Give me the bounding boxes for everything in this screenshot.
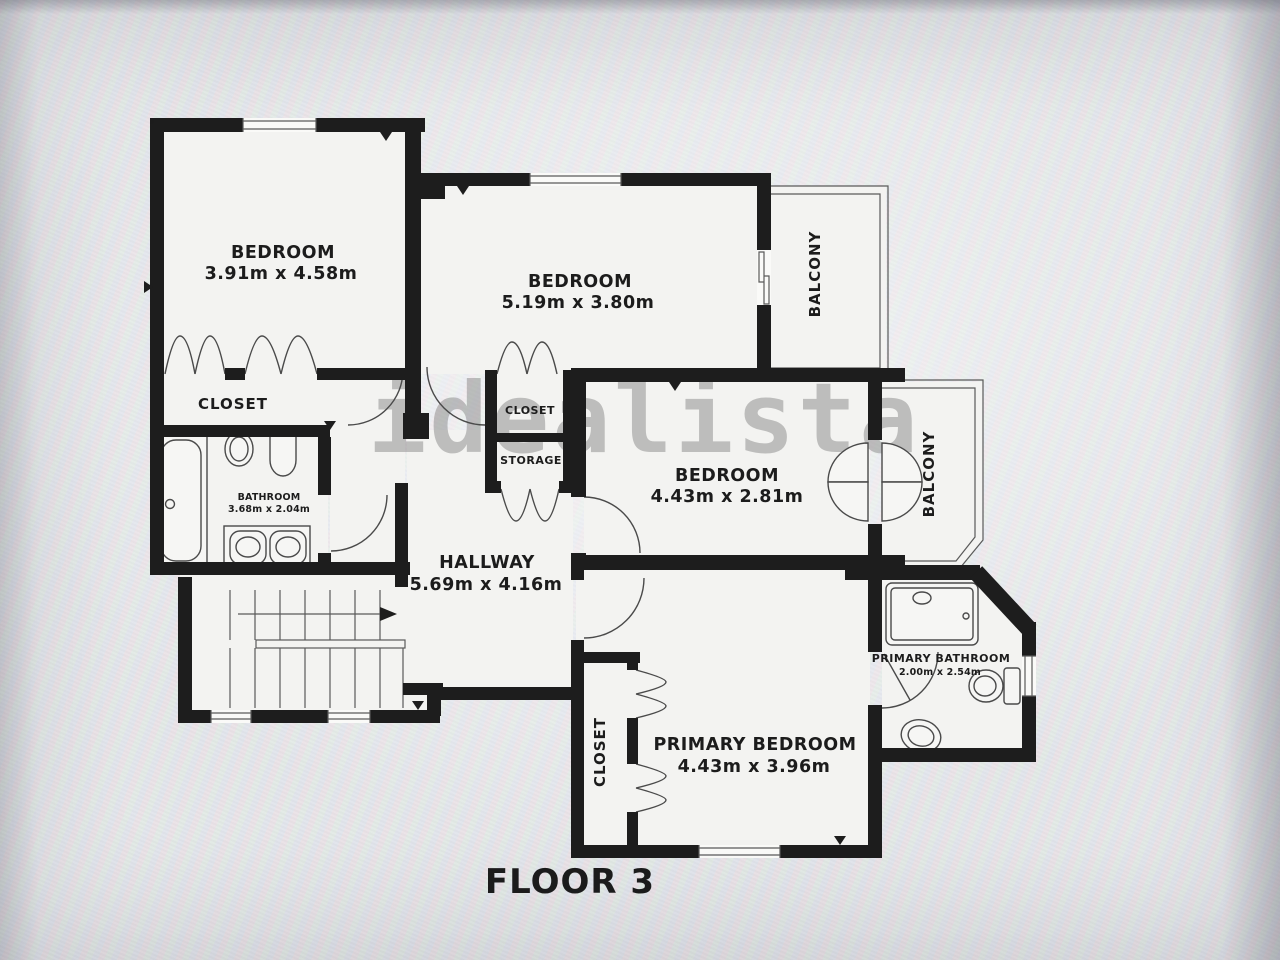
window-icon [328, 710, 370, 723]
bidet-icon [270, 436, 296, 476]
bathroom-dims: 3.68m x 2.04m [228, 504, 310, 515]
bedroom1-label: BEDROOM [231, 243, 335, 263]
storage-label: STORAGE [500, 454, 562, 467]
window-icon [236, 118, 323, 132]
primary-bedroom-dims: 4.43m x 3.96m [678, 757, 831, 777]
floor-plan-svg: idealista [0, 0, 1280, 960]
closet-bedroom1-label: CLOSET [198, 395, 268, 413]
balcony-top-label: BALCONY [806, 230, 824, 317]
balcony-right-label: BALCONY [920, 430, 938, 517]
window-icon [523, 173, 628, 186]
bedroom3-dims: 4.43m x 2.81m [651, 487, 804, 507]
double-sink-icon [224, 526, 310, 568]
bedroom2-dims: 5.19m x 3.80m [502, 293, 655, 313]
bedroom2-label: BEDROOM [528, 272, 632, 292]
shower-icon [886, 583, 978, 645]
floor-title: FLOOR 3 [485, 862, 655, 902]
window-icon [1022, 656, 1036, 696]
window-icon [692, 845, 787, 858]
toilet-icon [225, 432, 253, 466]
bedroom1-dims: 3.91m x 4.58m [205, 264, 358, 284]
window-icon [211, 710, 251, 723]
primary-bathroom-label: PRIMARY BATHROOM [872, 652, 1011, 665]
primary-bathroom-dims: 2.00m x 2.54m [899, 667, 981, 678]
bedroom3-label: BEDROOM [675, 466, 779, 486]
sliding-door-icon [757, 250, 771, 305]
bathroom-label: BATHROOM [238, 492, 301, 503]
hallway-label: HALLWAY [439, 553, 535, 573]
primary-bedroom-label: PRIMARY BEDROOM [653, 735, 856, 755]
closet-primary-label: CLOSET [591, 717, 609, 787]
closet-hall-label: CLOSET [505, 404, 555, 417]
hallway-dims: 5.69m x 4.16m [410, 575, 563, 595]
floor-plan-photo: idealista [0, 0, 1280, 960]
